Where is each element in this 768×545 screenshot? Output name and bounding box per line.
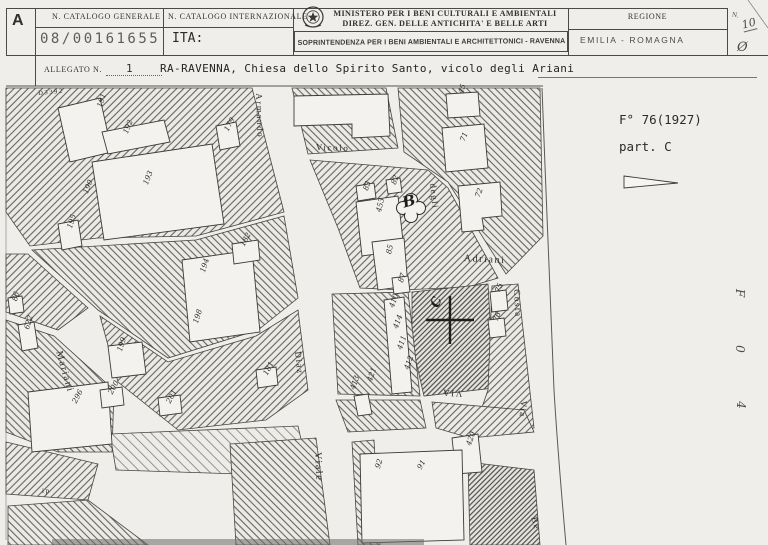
ministero-line1: MINISTERO PER I BENI CULTURALI E AMBIENT… [332, 9, 558, 18]
allegato-label: ALLEGATO N. [44, 65, 102, 74]
soprintendenza-stamp-text: SOPRINTENDENZA PER I BENI AMBIENTALI E A… [297, 36, 565, 47]
street-label-armando: Armando [254, 93, 265, 138]
cadastral-map-drawing [0, 0, 768, 545]
margin-vchar-0: 0 [733, 345, 747, 353]
state-emblem-icon [300, 4, 326, 30]
foglio-annotation: F° 76(1927) [619, 112, 702, 127]
street-label-vicolo: Vicolo [316, 143, 350, 153]
street-label-viale: Viale [312, 452, 324, 482]
allegato-title: RA-RAVENNA, Chiesa dello Spirito Santo, … [160, 62, 574, 75]
street-label-costa: Costa [512, 289, 522, 318]
allegato-dotted-line [106, 63, 162, 76]
map-sheet-edge [542, 88, 566, 545]
catalogo-generale-value: 08/00161655 [40, 31, 160, 47]
allegato-title-rule [538, 77, 757, 78]
vline-left [6, 8, 7, 55]
street-label-via: VIA [441, 388, 462, 398]
street-label-via: Via [518, 400, 528, 418]
allegato-number: 1 [126, 62, 133, 75]
catalogo-internazionale-label: N. CATALOGO INTERNAZIONALE [168, 12, 308, 21]
regione-value: EMILIA - ROMAGNA [580, 35, 684, 45]
regione-label: REGIONE [568, 12, 727, 21]
section-letter: A [12, 12, 24, 30]
header-row-rule [35, 27, 293, 28]
street-label-ip: ip [42, 488, 51, 495]
soprintendenza-stamp-box: SOPRINTENDENZA PER I BENI AMBIENTALI E A… [294, 31, 568, 52]
margin-vchar-4: 4 [734, 401, 748, 409]
particella-annotation: part. C [619, 139, 672, 154]
parcel-label-85: 85 [385, 244, 395, 255]
vline-cat [163, 8, 164, 55]
header-bottom-rule [6, 55, 768, 56]
catalog-card-page: A N. CATALOGO GENERALE 08/00161655 N. CA… [0, 0, 768, 545]
street-label-degli: degli [428, 183, 440, 210]
ministero-line2: DIREZ. GEN. DELLE ANTICHITA' E BELLE ART… [332, 19, 558, 28]
street-label-diaz: Diaz [293, 351, 304, 375]
margin-n-label: N. [731, 11, 739, 20]
scan-shadow-band [52, 539, 424, 545]
scale-pointer-icon [624, 176, 678, 188]
catalogo-generale-label: N. CATALOGO GENERALE [52, 12, 160, 21]
margin-circle-value: Ø [737, 40, 748, 55]
regione-row-rule [568, 29, 727, 30]
street-label-adriani: Adriani [463, 254, 505, 266]
vline-margin [727, 8, 728, 55]
vline-a-box [35, 8, 36, 86]
margin-vchar-f: F [733, 289, 747, 297]
catalogo-internazionale-value: ITA: [172, 31, 203, 46]
